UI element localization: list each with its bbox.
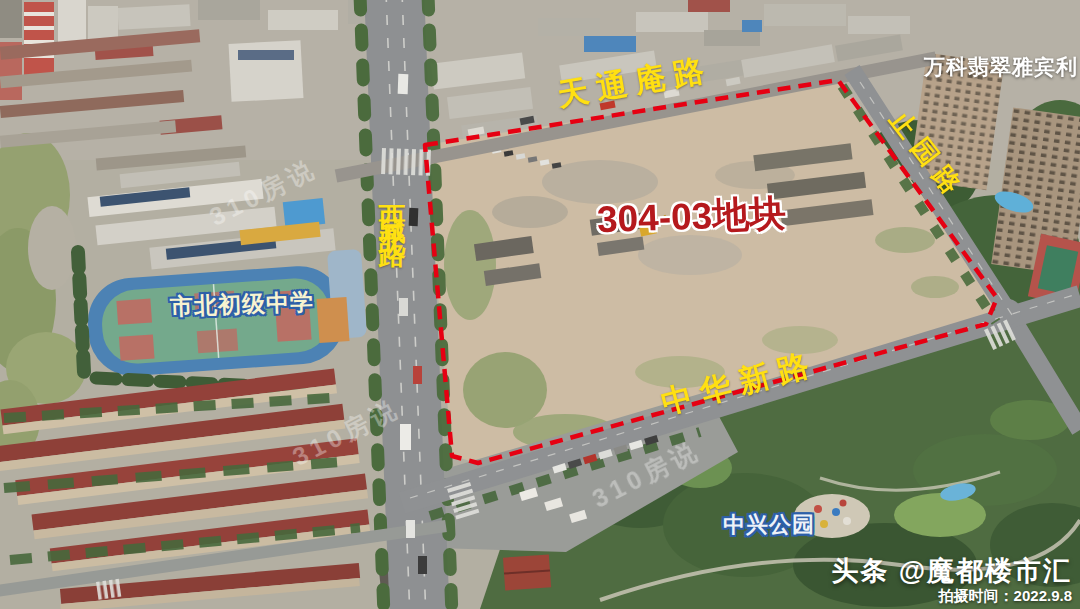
road-label-xizangbei: 西藏北路 (378, 183, 405, 231)
byline: 头条 @魔都楼市汇 (831, 553, 1072, 589)
residence-label: 万科翡翠雅宾利 (924, 56, 1078, 77)
scenery-layer (0, 0, 1080, 609)
school-label: 市北初级中学 (170, 290, 315, 318)
parcel-label: 304-03地块 (596, 195, 786, 239)
sports-field (85, 263, 347, 379)
red-roof-pavilion (503, 554, 551, 590)
credits: 头条 @魔都楼市汇 拍摄时间：2022.9.8 (831, 553, 1072, 606)
shot-time: 拍摄时间：2022.9.8 (831, 587, 1072, 606)
park-label: 中兴公园 (723, 514, 815, 536)
aerial-photo-scene: 天通庵路 西藏北路 止园路 中华新路 304-03地块 市北初级中学 中兴公园 … (0, 0, 1080, 609)
